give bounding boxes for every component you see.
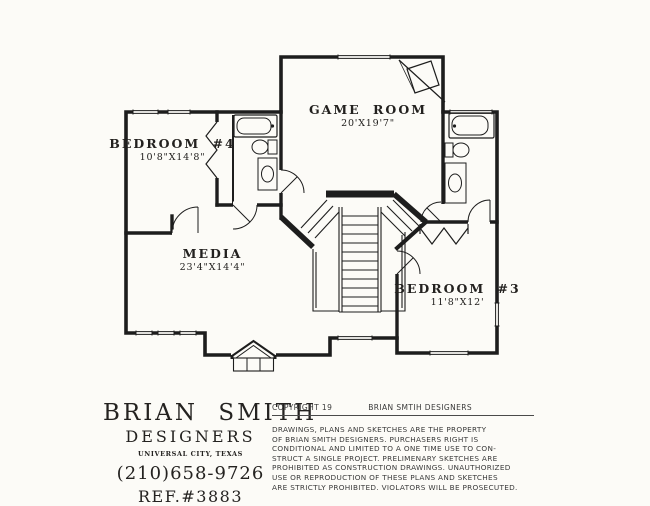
copyright-block: COPYRIGHT 19 BRIAN SMTIH DESIGNERS DRAWI… xyxy=(272,403,534,492)
bathtub-left-icon xyxy=(234,115,277,137)
stair-head-wall xyxy=(326,191,394,198)
floor-plan-page: GAME ROOM 20'X19'7" BEDROOM #4 10'8"X14'… xyxy=(0,0,650,502)
staircase xyxy=(281,191,426,313)
stair-rails xyxy=(301,200,419,312)
stair-treads xyxy=(342,216,378,306)
copyright-label: COPYRIGHT 19 xyxy=(272,403,332,412)
firm-phone: (210)658-9726 xyxy=(103,463,278,484)
copyright-line: ARE STRICTLY PROHIBITED. VIOLATORS WILL … xyxy=(272,483,534,493)
plan-reference-number: REF.#3883 xyxy=(103,487,278,506)
firm-name: BRIAN SMITH xyxy=(103,400,278,426)
sink-right-icon xyxy=(445,163,466,203)
copyright-line: USE OR REPRODUCTION OF THESE PLANS AND S… xyxy=(272,473,534,483)
wall-opening-erasers xyxy=(133,54,501,359)
copyright-line: STRUCT A SINGLE PROJECT. PRELIMENARY SKE… xyxy=(272,454,534,464)
copyright-line: PROHIBITED AS CONSTRUCTION DRAWINGS. UNA… xyxy=(272,463,534,473)
toilet-left-icon xyxy=(252,140,277,154)
toilet-right-icon xyxy=(445,143,469,157)
sink-left-icon xyxy=(258,158,277,190)
copyright-line: OF BRIAN SMITH DESIGNERS. PURCHASERS RIG… xyxy=(272,435,534,445)
bedroom4-door-icon xyxy=(172,207,198,233)
copyright-line: DRAWINGS, PLANS AND SKETCHES ARE THE PRO… xyxy=(272,425,534,435)
bath-left-door-icon xyxy=(233,205,257,229)
copyright-header: COPYRIGHT 19 BRIAN SMTIH DESIGNERS xyxy=(272,403,534,416)
copyright-line: CONDITIONAL AND LIMITED TO A ONE TIME US… xyxy=(272,444,534,454)
copyright-body: DRAWINGS, PLANS AND SKETCHES ARE THE PRO… xyxy=(272,425,534,492)
copyright-firm: BRIAN SMTIH DESIGNERS xyxy=(368,403,472,412)
bedroom3-closet-doors xyxy=(420,224,468,244)
title-block: BRIAN SMITH DESIGNERS UNIVERSAL CITY, TE… xyxy=(103,400,278,506)
firm-subtitle: DESIGNERS xyxy=(103,427,278,446)
bathtub-right-icon xyxy=(449,113,494,138)
firm-location: UNIVERSAL CITY, TEXAS xyxy=(103,450,278,458)
interior-walls xyxy=(126,112,497,338)
corner-fireplace-icon xyxy=(399,60,445,102)
